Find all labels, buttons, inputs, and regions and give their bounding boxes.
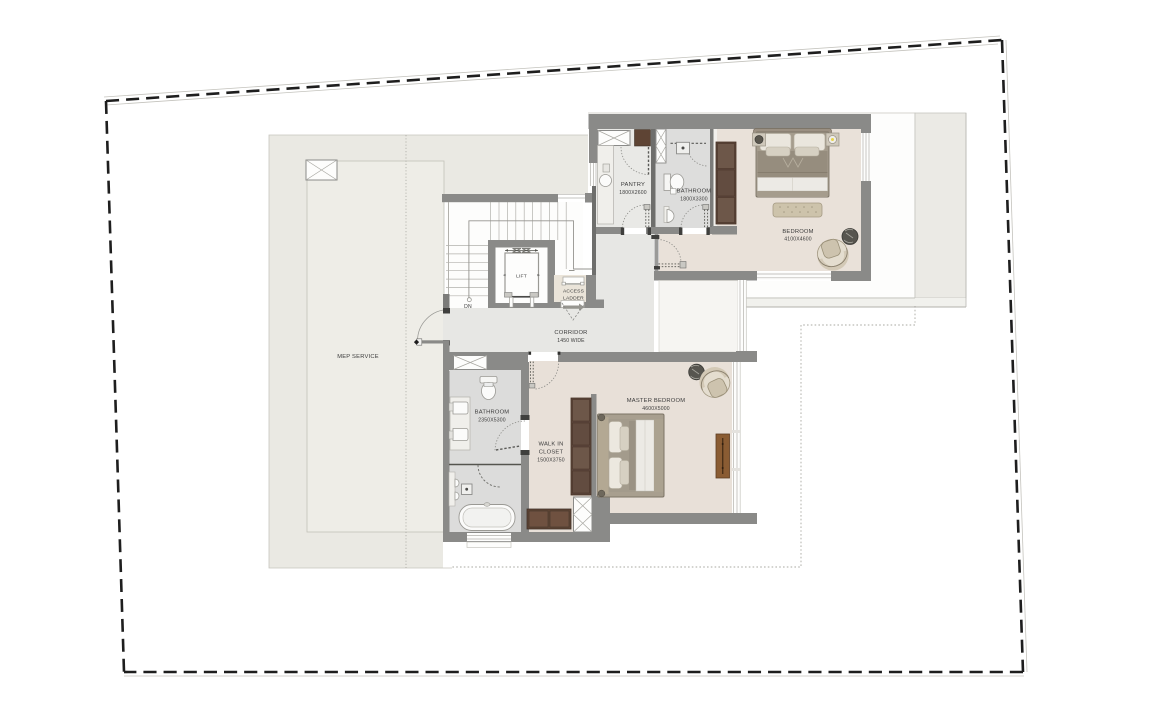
svg-text:1500X3750: 1500X3750	[537, 458, 564, 464]
svg-text:2350X5300: 2350X5300	[478, 418, 505, 424]
svg-text:ACCESS: ACCESS	[563, 289, 585, 295]
svg-text:BEDROOM: BEDROOM	[782, 229, 813, 235]
svg-text:LIFT: LIFT	[516, 274, 527, 280]
svg-text:CORRIDOR: CORRIDOR	[554, 330, 587, 336]
svg-text:BATHROOM: BATHROOM	[677, 189, 712, 195]
svg-text:1450 WIDE: 1450 WIDE	[557, 338, 585, 344]
svg-text:1800X3300: 1800X3300	[680, 197, 707, 203]
svg-text:MASTER BEDROOM: MASTER BEDROOM	[627, 398, 686, 404]
svg-text:MEP SERVICE: MEP SERVICE	[337, 354, 379, 360]
svg-text:DN: DN	[464, 304, 472, 310]
svg-text:PANTRY: PANTRY	[621, 182, 645, 188]
svg-text:WALK IN: WALK IN	[538, 442, 563, 448]
svg-text:4100X4600: 4100X4600	[784, 237, 811, 243]
svg-text:BATHROOM: BATHROOM	[475, 410, 510, 416]
svg-text:CLOSET: CLOSET	[539, 450, 564, 456]
svg-text:1800X2600: 1800X2600	[619, 190, 646, 196]
svg-text:4600X5000: 4600X5000	[642, 406, 669, 412]
